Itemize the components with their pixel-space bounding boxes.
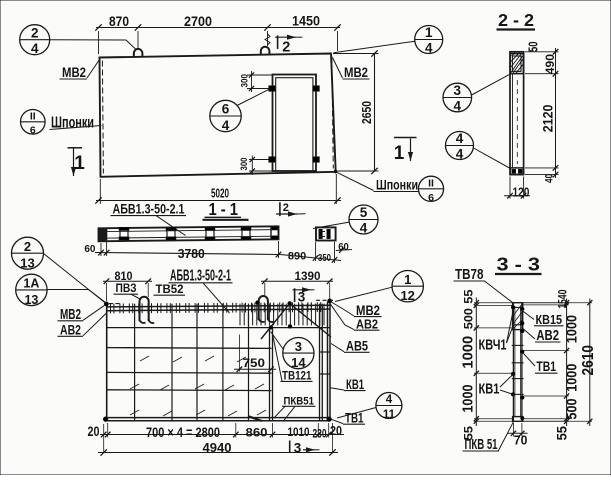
svg-text:4: 4 <box>360 221 368 236</box>
svg-text:ТВ1: ТВ1 <box>345 410 364 425</box>
svg-text:870: 870 <box>109 14 129 29</box>
svg-text:4: 4 <box>454 99 462 114</box>
svg-text:4: 4 <box>456 146 464 161</box>
svg-text:6: 6 <box>428 192 434 204</box>
svg-text:2610: 2610 <box>580 345 597 376</box>
svg-text:МВ2: МВ2 <box>344 65 368 80</box>
svg-text:4: 4 <box>456 131 464 146</box>
svg-text:1: 1 <box>394 143 405 164</box>
svg-text:3: 3 <box>295 339 302 354</box>
svg-text:1000: 1000 <box>564 364 581 392</box>
svg-text:ТВ121: ТВ121 <box>282 368 312 382</box>
svg-text:Шпонки: Шпонки <box>376 176 418 192</box>
svg-text:500: 500 <box>462 308 476 329</box>
svg-text:5020: 5020 <box>211 185 229 200</box>
svg-text:ТВ78: ТВ78 <box>455 267 484 283</box>
svg-text:15: 15 <box>557 299 569 308</box>
svg-text:4940: 4940 <box>203 440 232 455</box>
svg-text:12: 12 <box>400 288 414 303</box>
svg-text:КВЧ1: КВЧ1 <box>479 336 507 353</box>
svg-text:20: 20 <box>330 423 342 438</box>
svg-text:5: 5 <box>360 205 368 220</box>
svg-text:120: 120 <box>513 185 530 200</box>
svg-text:2: 2 <box>24 239 31 254</box>
svg-text:3: 3 <box>454 83 462 98</box>
svg-text:2700: 2700 <box>184 14 212 29</box>
svg-text:1А: 1А <box>23 277 39 291</box>
svg-text:1000: 1000 <box>460 336 476 369</box>
svg-text:2650: 2650 <box>359 101 374 124</box>
svg-text:55: 55 <box>553 426 569 441</box>
svg-text:6: 6 <box>222 102 230 117</box>
svg-text:4: 4 <box>425 40 433 55</box>
svg-text:3 - 3: 3 - 3 <box>497 254 541 275</box>
svg-text:40: 40 <box>557 290 569 300</box>
svg-text:КВ1: КВ1 <box>479 380 500 397</box>
svg-text:4: 4 <box>222 118 230 133</box>
svg-text:60: 60 <box>338 242 349 253</box>
svg-text:490: 490 <box>543 54 557 74</box>
svg-text:11: 11 <box>383 409 396 421</box>
svg-text:АВ2: АВ2 <box>356 316 378 331</box>
svg-text:3780: 3780 <box>178 247 205 261</box>
svg-text:1010: 1010 <box>288 425 310 439</box>
svg-text:890: 890 <box>288 250 306 262</box>
svg-text:20: 20 <box>88 424 100 439</box>
svg-text:50: 50 <box>525 42 540 53</box>
svg-text:2: 2 <box>282 40 290 56</box>
svg-text:60: 60 <box>84 243 95 255</box>
svg-text:500: 500 <box>564 398 581 419</box>
svg-text:ТВ52: ТВ52 <box>156 282 184 296</box>
svg-text:1000: 1000 <box>460 384 476 412</box>
svg-text:1000: 1000 <box>564 315 581 343</box>
svg-text:4: 4 <box>386 394 393 406</box>
svg-text:ПКВ 51: ПКВ 51 <box>465 437 498 453</box>
svg-text:АБВ1.3-50-2.1: АБВ1.3-50-2.1 <box>113 201 185 216</box>
svg-text:750: 750 <box>243 356 266 370</box>
svg-text:1: 1 <box>74 153 85 174</box>
svg-text:3: 3 <box>298 290 306 305</box>
svg-text:55: 55 <box>462 289 476 304</box>
svg-text:ПВЗ: ПВЗ <box>116 281 137 295</box>
svg-text:3: 3 <box>294 440 302 455</box>
svg-text:КВ1: КВ1 <box>346 377 364 392</box>
svg-text:300: 300 <box>240 74 250 88</box>
svg-text:II: II <box>30 111 36 123</box>
svg-text:13: 13 <box>20 255 34 270</box>
svg-text:6: 6 <box>30 125 36 137</box>
svg-text:2: 2 <box>31 25 39 40</box>
svg-text:350: 350 <box>318 253 331 264</box>
svg-text:ТВ1: ТВ1 <box>536 358 556 374</box>
svg-text:1390: 1390 <box>295 269 321 283</box>
svg-text:1: 1 <box>404 272 411 287</box>
svg-text:АВ5: АВ5 <box>346 338 368 353</box>
svg-text:4: 4 <box>31 41 39 56</box>
svg-text:1 - 1: 1 - 1 <box>209 199 239 219</box>
svg-text:230: 230 <box>313 426 327 440</box>
svg-text:70: 70 <box>514 434 528 448</box>
svg-text:АВ2: АВ2 <box>60 321 81 337</box>
svg-text:II: II <box>428 178 434 190</box>
svg-text:КВ15: КВ15 <box>536 312 563 327</box>
svg-text:300: 300 <box>239 157 249 170</box>
svg-text:МВ2: МВ2 <box>62 65 86 80</box>
svg-text:860: 860 <box>246 425 268 439</box>
svg-text:13: 13 <box>24 293 38 307</box>
svg-text:2120: 2120 <box>541 105 556 133</box>
svg-text:2: 2 <box>283 202 289 214</box>
svg-text:700 × 4 = 2800: 700 × 4 = 2800 <box>146 425 220 440</box>
svg-text:2 - 2: 2 - 2 <box>498 10 534 30</box>
svg-text:40: 40 <box>544 174 556 183</box>
svg-text:1: 1 <box>425 25 433 40</box>
svg-text:1450: 1450 <box>292 13 320 28</box>
svg-text:ПКВ51: ПКВ51 <box>284 395 315 407</box>
